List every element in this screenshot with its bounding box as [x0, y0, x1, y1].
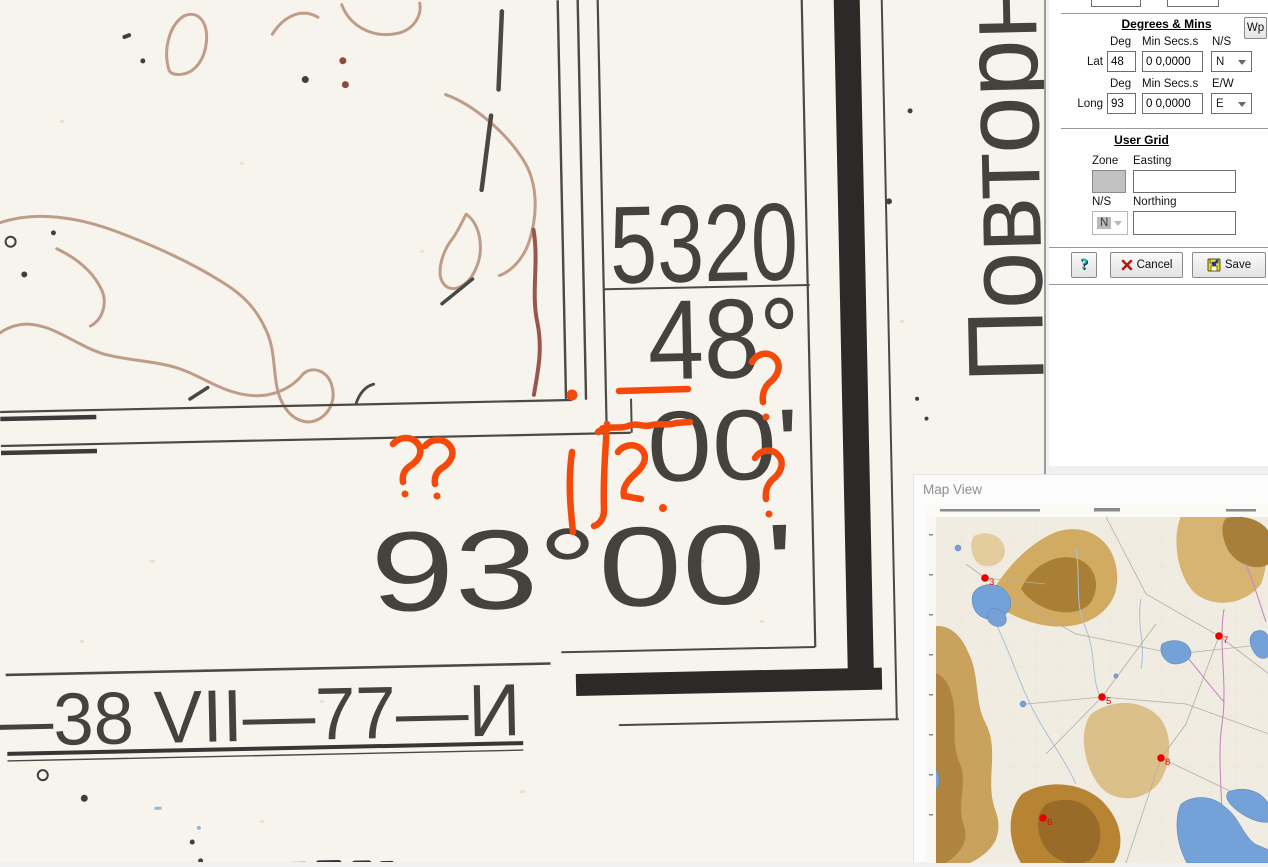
long-hemisphere-value: E [1216, 98, 1224, 110]
long-deg-header: Deg [1110, 78, 1131, 90]
scan-side-text: Повторн [937, 0, 1045, 384]
help-icon: ? [1080, 256, 1088, 274]
lat-min-input[interactable] [1142, 51, 1203, 72]
svg-text:6: 6 [1047, 817, 1052, 828]
long-hemisphere-select[interactable]: E [1211, 93, 1252, 114]
easting-label: Easting [1133, 155, 1171, 167]
ns-value: N [1097, 217, 1111, 229]
long-deg-input[interactable] [1107, 93, 1136, 114]
separator [1061, 13, 1268, 14]
mapview-left-margin [926, 517, 936, 863]
long-min-header: Min Secs.s [1142, 78, 1198, 90]
cancel-x-icon [1121, 259, 1133, 271]
map-view-panel: Map View [913, 474, 1268, 862]
lat-hemi-header: N/S [1212, 36, 1231, 48]
svg-text:8: 8 [1165, 757, 1170, 768]
lat-deg-header: Deg [1110, 36, 1131, 48]
top-cut-input-2[interactable] [1167, 0, 1219, 7]
northing-label: Northing [1133, 196, 1176, 208]
chevron-down-icon [1238, 60, 1246, 65]
save-button[interactable]: Save [1192, 252, 1266, 278]
topo-map-scan[interactable]: 5320 48° 00' 93°00' —38 VII—77—И Повторн [0, 0, 1045, 862]
easting-input[interactable] [1133, 170, 1236, 193]
help-button[interactable]: ? [1071, 252, 1097, 278]
lat-hemisphere-select[interactable]: N [1211, 51, 1252, 72]
cancel-button[interactable]: Cancel [1110, 252, 1183, 278]
cancel-label: Cancel [1137, 259, 1173, 271]
user-grid-title: User Grid [1069, 133, 1214, 147]
scan-sheet-designation: —38 VII—77—И [0, 668, 521, 762]
topo-map-scan-svg: 5320 48° 00' 93°00' —38 VII—77—И Повторн [0, 0, 1045, 862]
lat-hemisphere-value: N [1216, 56, 1224, 68]
save-label: Save [1225, 259, 1251, 271]
map-view-title: Map View [923, 482, 982, 497]
lat-deg-input[interactable] [1107, 51, 1136, 72]
scan-longitude-label: 93°00' [369, 500, 796, 635]
degrees-mins-title: Degrees & Mins [1079, 17, 1254, 31]
scan-latitude-degrees: 48° [646, 274, 801, 403]
wp-button[interactable]: Wp [1244, 17, 1267, 39]
long-min-input[interactable] [1142, 93, 1203, 114]
svg-text:3: 3 [989, 577, 994, 588]
zone-label: Zone [1092, 155, 1118, 167]
chevron-down-icon [1238, 102, 1246, 107]
zone-box[interactable] [1092, 170, 1126, 193]
svg-text:7: 7 [1223, 635, 1228, 646]
annotation-corner-dot [567, 390, 578, 401]
chevron-down-icon [1114, 221, 1122, 226]
long-label: Long [1073, 98, 1103, 110]
coordinate-dialog: Degrees & Mins Wp Deg Min Secs.s N/S Lat… [1049, 0, 1268, 466]
northing-input[interactable] [1133, 211, 1236, 235]
separator [1061, 128, 1268, 129]
ns-label: N/S [1092, 196, 1111, 208]
ns-select-disabled: N [1092, 211, 1128, 235]
separator [1049, 284, 1268, 285]
lat-min-header: Min Secs.s [1142, 36, 1198, 48]
long-hemi-header: E/W [1212, 78, 1234, 90]
lat-label: Lat [1073, 56, 1103, 68]
save-floppy-icon [1207, 258, 1221, 272]
window-edge-divider [1044, 0, 1046, 474]
separator [1049, 247, 1268, 248]
top-cut-input-1[interactable] [1091, 0, 1141, 7]
svg-text:5: 5 [1106, 696, 1111, 707]
scan-latitude-minutes: 00' [646, 388, 800, 503]
map-view-map[interactable]: 3 7 5 8 6 [926, 504, 1268, 863]
